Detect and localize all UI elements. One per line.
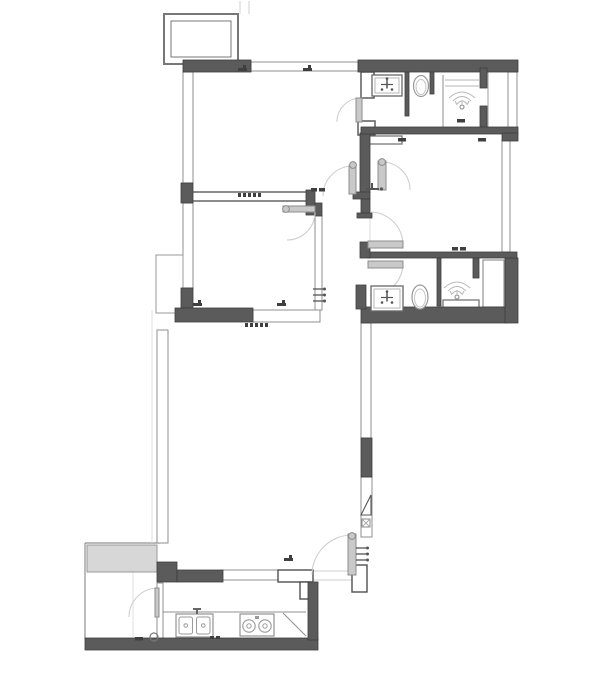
wall-mark-symbol <box>277 300 286 306</box>
door-bedroom2-arc <box>287 212 315 240</box>
door-entry-hinge <box>349 533 356 540</box>
kitchen-faucet-symbol <box>193 608 201 614</box>
triple-tick-dot <box>323 294 326 297</box>
wall-kitchen-step <box>157 562 177 582</box>
faucet-dot <box>381 88 384 91</box>
faucet-dot <box>391 301 394 304</box>
wall-top-right <box>358 60 518 72</box>
triple-tick-dot <box>366 559 369 562</box>
window-living-right <box>361 323 371 438</box>
bath2-toilet-fixture <box>412 285 428 309</box>
wall-tick <box>478 138 486 142</box>
wall-shower1-stub-a <box>480 68 487 88</box>
kitchen-faucet <box>193 608 201 610</box>
faucet-dot <box>381 301 384 304</box>
door-utility-leaf <box>155 588 159 617</box>
wall-tick <box>135 637 143 641</box>
wall-mark <box>198 300 201 303</box>
track-hatch <box>250 323 253 327</box>
track-hatch <box>238 193 241 197</box>
faucet-dot <box>386 77 389 80</box>
wall-bedroom3-bottom <box>368 252 517 258</box>
wall-mark <box>193 303 202 306</box>
wall-mark <box>243 65 246 68</box>
wall-bath2-right <box>505 258 518 323</box>
double-mark-symbol <box>452 247 466 251</box>
wall-bath2-div <box>437 258 441 306</box>
wall-bath2-stub <box>473 258 479 278</box>
door-entry-arc <box>312 535 352 575</box>
window-left-mid <box>183 203 193 288</box>
bath2-alcove <box>483 260 504 307</box>
double-mark <box>319 188 325 192</box>
wall-kitchen-right <box>308 582 318 640</box>
track-hatch <box>260 323 263 327</box>
wall-hall-vertical <box>360 133 370 193</box>
wall-tick <box>398 138 406 142</box>
triple-tick-dot <box>366 547 369 550</box>
bath1-shower-head <box>460 105 464 109</box>
window-bedroom2-bottom <box>253 310 320 322</box>
track-hatch-symbol <box>245 323 268 327</box>
faucet-dot <box>391 88 394 91</box>
wall-mark-symbol <box>284 555 293 561</box>
bath1-shower-ray <box>455 101 457 105</box>
window-bedroom3-right <box>502 140 510 252</box>
bath2-shower-ray <box>462 291 464 295</box>
bath1-shower-spray <box>449 92 475 98</box>
wall-right-jog <box>502 133 518 141</box>
wall-hall-step2 <box>315 203 322 216</box>
window-living-left <box>157 330 168 543</box>
wall-mark <box>284 558 293 561</box>
wall-mark-symbol <box>193 300 202 306</box>
triple-tick-dot <box>323 300 326 303</box>
bath1-shower-ray <box>467 101 469 105</box>
door-bath2-leaf <box>368 261 403 268</box>
window-left-upper <box>183 72 193 183</box>
wall-bath2-left-block <box>356 285 366 309</box>
tee-mark-dot <box>380 187 383 190</box>
wall-kitchen-bar <box>177 570 223 582</box>
wall-mark <box>308 65 311 68</box>
stove-knob <box>255 616 259 619</box>
door-closet-arc <box>370 212 403 245</box>
door-entry-leaf <box>348 534 356 575</box>
utility-shade <box>87 545 157 572</box>
dot-pair <box>210 636 214 639</box>
kitchen-sink-fixture <box>176 614 213 637</box>
stove-fixture <box>240 614 274 636</box>
bath2-sink-fixture <box>371 286 403 311</box>
wall-mark <box>289 555 292 558</box>
bath2-shower-fixture <box>444 282 470 299</box>
floor-plan-page <box>0 0 600 679</box>
wall-living-right-seg <box>361 438 372 477</box>
wall-tick-symbol <box>135 637 143 641</box>
window-bedroom2-right <box>315 215 322 310</box>
track-hatch <box>265 323 268 327</box>
track-hatch <box>245 323 248 327</box>
door-bedroom1-leaf <box>349 166 356 194</box>
wall-bath1-bottom <box>361 127 518 134</box>
entry-west-piece <box>278 570 313 582</box>
counter-diagonal <box>283 613 306 636</box>
wall-tick <box>457 119 465 123</box>
wall-tick-symbol <box>398 138 406 142</box>
double-mark <box>311 188 317 192</box>
wall-left-block-upper <box>181 183 193 203</box>
wall-bath1-div-b <box>430 72 434 94</box>
wall-mark <box>277 303 286 306</box>
door-bedroom2-hinge <box>283 206 290 213</box>
floor-plan-canvas <box>0 0 600 679</box>
bath1-inner-step <box>367 136 402 144</box>
wall-tick-symbol <box>457 119 465 123</box>
door-bedroom3-hinge <box>379 159 386 166</box>
wall-hall-zig-b <box>361 199 370 213</box>
bath2-shower-spray <box>444 282 470 288</box>
wall-bath1-div-a <box>405 72 409 116</box>
wall-mark <box>238 68 247 71</box>
bath2-shower-ray <box>450 291 452 295</box>
wall-tick-symbol <box>478 138 486 142</box>
track-hatch <box>255 323 258 327</box>
bath2-shower-head <box>455 295 459 299</box>
tee-mark <box>371 183 373 188</box>
window-topright-side <box>508 72 517 128</box>
track-hatch <box>248 193 251 197</box>
bath1-toilet-fixture <box>414 76 429 97</box>
wall-hall-zig-c <box>357 213 372 218</box>
triple-tick-dot <box>366 553 369 556</box>
track-hatch <box>243 193 246 197</box>
kitchen-sink-basin <box>197 617 211 634</box>
wall-mark <box>282 300 285 303</box>
track-hatch <box>258 193 261 197</box>
double-mark-symbol <box>311 188 325 192</box>
window-kitchen <box>222 570 278 580</box>
triple-tick-dot <box>323 288 326 291</box>
wall-mark <box>303 68 312 71</box>
wall-bedroom2-bottom <box>175 308 253 322</box>
door-closet-leaf <box>368 241 403 248</box>
door-bedroom1-hinge <box>350 162 357 169</box>
bath1-sink-fixture <box>372 75 402 96</box>
bath1-shower-fixture <box>449 92 475 109</box>
faucet-dot <box>386 290 389 293</box>
double-mark <box>452 247 458 251</box>
double-mark <box>460 247 466 251</box>
kitchen-sink-basin <box>179 617 193 634</box>
wall-left-block-lower <box>181 288 193 308</box>
wall-bottom <box>85 638 318 650</box>
balcony-inner <box>171 21 231 57</box>
door-bath1-leaf <box>356 98 362 122</box>
triple-tick-symbol <box>356 547 369 562</box>
left-shaft <box>156 255 183 313</box>
track-hatch <box>253 193 256 197</box>
dot-pair <box>216 636 220 639</box>
tee-mark <box>366 188 379 190</box>
